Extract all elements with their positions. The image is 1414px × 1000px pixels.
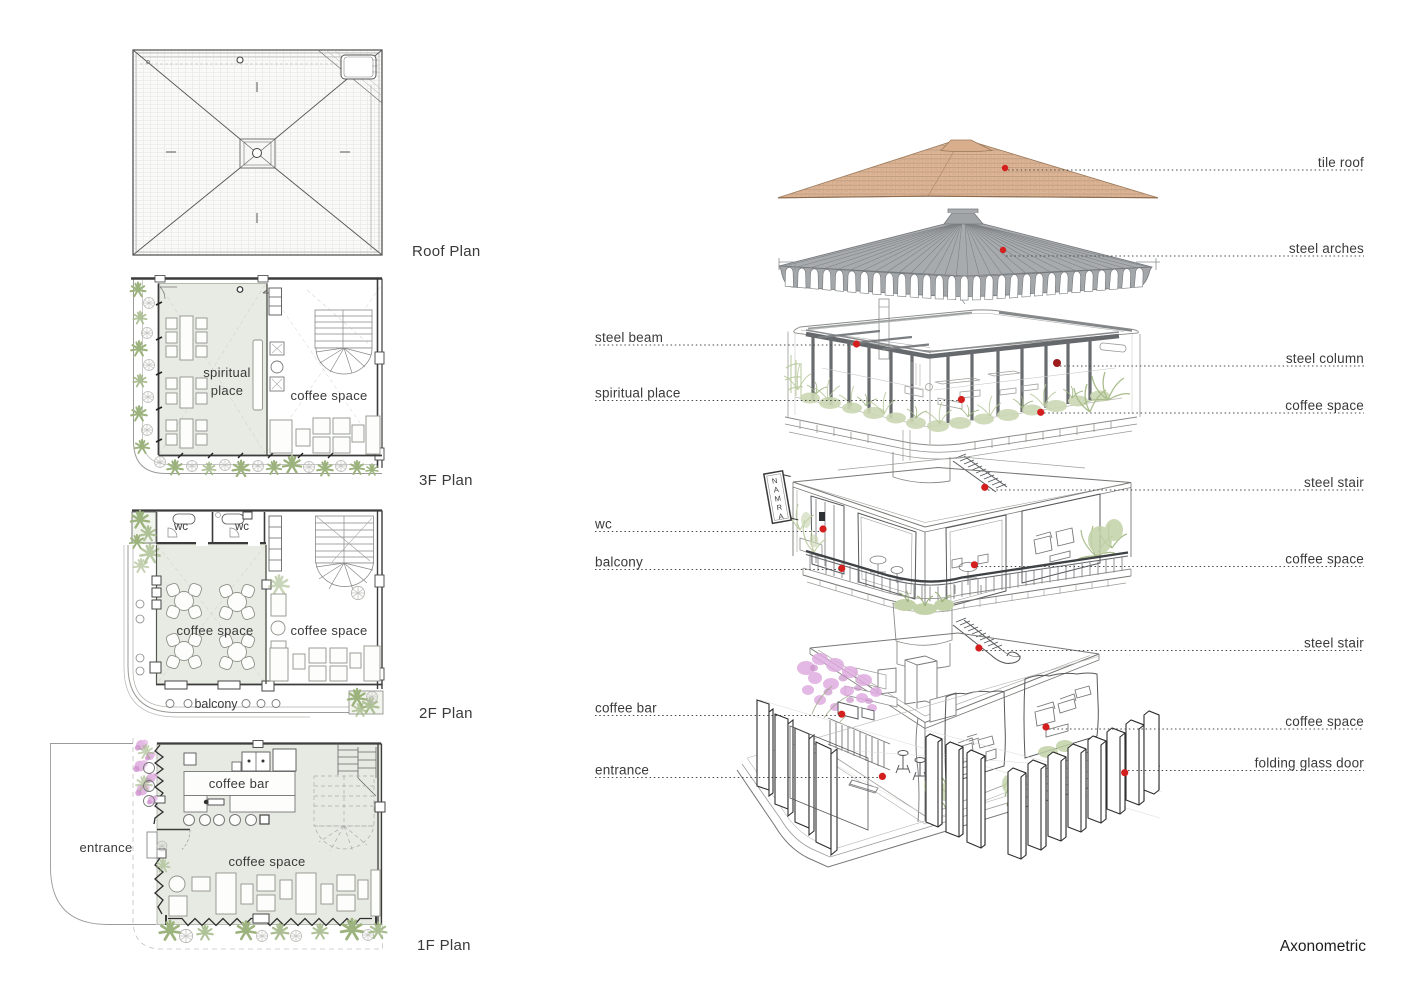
svg-text:coffee space: coffee space — [1285, 552, 1364, 567]
svg-text:2F Plan: 2F Plan — [419, 705, 473, 722]
svg-text:entrance: entrance — [80, 840, 133, 855]
svg-text:spiritual: spiritual — [203, 365, 251, 380]
svg-text:steel stair: steel stair — [1304, 475, 1364, 490]
svg-text:coffee space: coffee space — [1285, 714, 1364, 729]
svg-text:coffee space: coffee space — [228, 854, 305, 869]
svg-text:balcony: balcony — [194, 697, 238, 711]
svg-text:coffee space: coffee space — [290, 388, 367, 403]
svg-text:Roof Plan: Roof Plan — [412, 243, 481, 260]
svg-text:steel column: steel column — [1286, 351, 1364, 366]
svg-text:coffee space: coffee space — [1285, 398, 1364, 413]
svg-text:coffee bar: coffee bar — [209, 776, 270, 791]
svg-text:3F Plan: 3F Plan — [419, 472, 473, 489]
svg-text:1F Plan: 1F Plan — [417, 937, 471, 954]
svg-text:wc: wc — [173, 521, 188, 533]
svg-text:place: place — [211, 383, 244, 398]
svg-text:coffee space: coffee space — [176, 623, 253, 638]
svg-text:steel arches: steel arches — [1289, 241, 1364, 256]
svg-text:spiritual place: spiritual place — [595, 386, 681, 401]
svg-text:folding glass door: folding glass door — [1255, 756, 1365, 771]
svg-text:steel beam: steel beam — [595, 330, 663, 345]
svg-text:wc: wc — [234, 521, 249, 533]
svg-text:balcony: balcony — [595, 555, 643, 570]
svg-text:steel stair: steel stair — [1304, 636, 1364, 651]
svg-text:wc: wc — [594, 517, 612, 532]
svg-text:Axonometric: Axonometric — [1280, 938, 1366, 955]
svg-text:coffee space: coffee space — [290, 623, 367, 638]
svg-text:entrance: entrance — [595, 763, 649, 778]
svg-text:tile roof: tile roof — [1318, 155, 1364, 170]
svg-text:coffee bar: coffee bar — [595, 701, 657, 716]
